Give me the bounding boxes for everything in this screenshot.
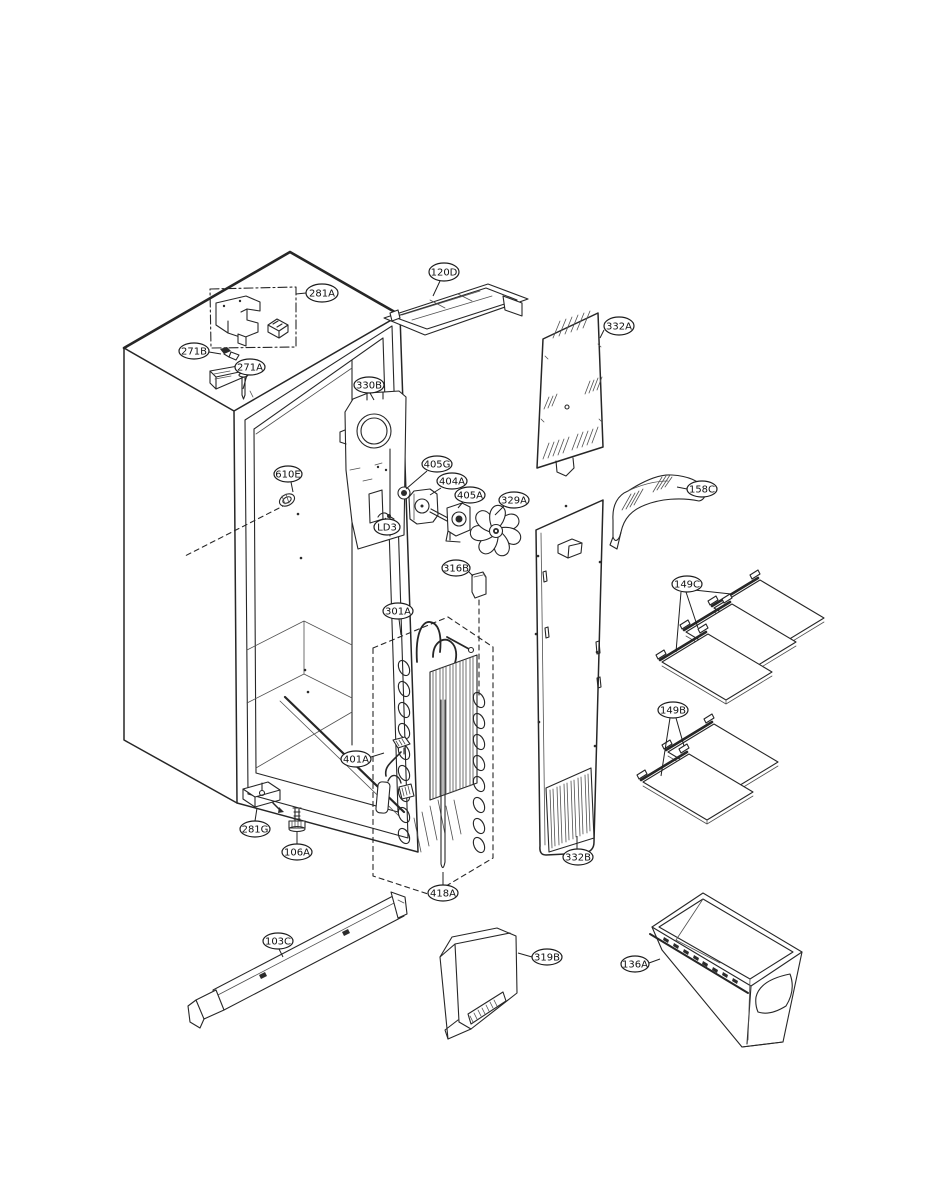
part-number-text: 120D — [431, 268, 458, 279]
part-number-text: 329A — [501, 496, 527, 507]
callout-leader-line — [209, 352, 221, 354]
callout-leader-line — [600, 330, 604, 338]
callout-leader-line — [296, 293, 306, 294]
part-number-text: 271A — [237, 363, 263, 374]
callout-leader-line — [291, 482, 293, 492]
callout-leader-line — [433, 281, 440, 296]
bracket-271B — [220, 347, 239, 360]
part-number-text: 405A — [457, 491, 483, 502]
part-number-text: 332A — [606, 322, 632, 333]
part-callout-332A: 332A — [600, 317, 634, 338]
part-number-text: 149B — [660, 706, 686, 717]
callout-leader-line — [469, 572, 473, 576]
shelf-group-149B — [637, 714, 778, 824]
lower-hinge-281G — [243, 782, 284, 813]
part-number-text: 301A — [385, 607, 411, 618]
part-number-text: 281G — [242, 825, 269, 836]
part-number-text: 405G — [424, 460, 451, 471]
part-number-text: 158C — [689, 485, 715, 496]
evaporator-assembly-301A — [373, 617, 493, 895]
part-number-text: 136A — [622, 960, 648, 971]
part-callout-418A: 418A — [428, 872, 458, 901]
lamp-grommet-610E — [277, 491, 296, 508]
back-panel-332A — [537, 311, 603, 476]
part-callout-610E: 610E — [274, 466, 302, 492]
callout-leader-line — [694, 590, 731, 594]
part-callout-316B: 316B — [442, 560, 473, 576]
callouts-layer: 281A271B271A120D332A330B610E405G404A405A… — [179, 263, 731, 972]
part-number-text: 418A — [430, 889, 456, 900]
part-number-text: 401A — [343, 755, 369, 766]
cabinet-outline — [124, 252, 418, 852]
callout-leader-line — [676, 592, 681, 652]
part-number-text: 404A — [439, 477, 465, 488]
part-number-text: 281A — [309, 289, 335, 300]
part-number-text: 332B — [565, 853, 591, 864]
diagram-page: 281A271B271A120D332A330B610E405G404A405A… — [0, 0, 927, 1200]
callout-leader-line — [406, 471, 427, 489]
part-callout-301A: 301A — [383, 603, 413, 635]
part-callout-136A: 136A — [621, 956, 660, 972]
support-rail-103C — [188, 892, 407, 1028]
part-callout-281G: 281G — [240, 808, 270, 837]
part-number-text: LD3 — [377, 523, 397, 534]
grille-panel-332B — [535, 500, 603, 855]
part-number-text: 149C — [674, 580, 700, 591]
parts-diagram-canvas: 281A271B271A120D332A330B610E405G404A405A… — [0, 0, 927, 1200]
part-number-text: 106A — [284, 848, 310, 859]
grommet-405G — [398, 487, 410, 499]
part-callout-120D: 120D — [429, 263, 459, 296]
part-callout-281A: 281A — [296, 284, 338, 302]
fan-blade-329A — [468, 502, 524, 557]
part-callout-319B: 319B — [518, 949, 562, 965]
callout-leader-line — [255, 808, 257, 821]
part-number-text: 271B — [181, 347, 207, 358]
part-callout-106A: 106A — [282, 832, 312, 860]
grille-tray-120D — [384, 284, 528, 335]
callout-leader-line — [649, 959, 660, 963]
part-callout-271B: 271B — [179, 343, 221, 359]
duct-cover-319B — [440, 928, 517, 1039]
motor-bracket-405A — [446, 503, 470, 542]
part-number-text: 319B — [534, 953, 560, 964]
part-number-text: 103C — [265, 937, 291, 948]
ice-bin-136A — [650, 893, 802, 1047]
part-number-text: 610E — [275, 470, 300, 481]
part-callout-401A: 401A — [341, 751, 384, 767]
callout-leader-line — [518, 953, 532, 957]
fan-motor-404A — [409, 489, 448, 524]
part-number-text: 316B — [443, 564, 469, 575]
part-number-text: 330B — [356, 381, 382, 392]
top-hinge-cover-box-281A — [210, 287, 296, 348]
callout-leader-line — [371, 753, 384, 757]
